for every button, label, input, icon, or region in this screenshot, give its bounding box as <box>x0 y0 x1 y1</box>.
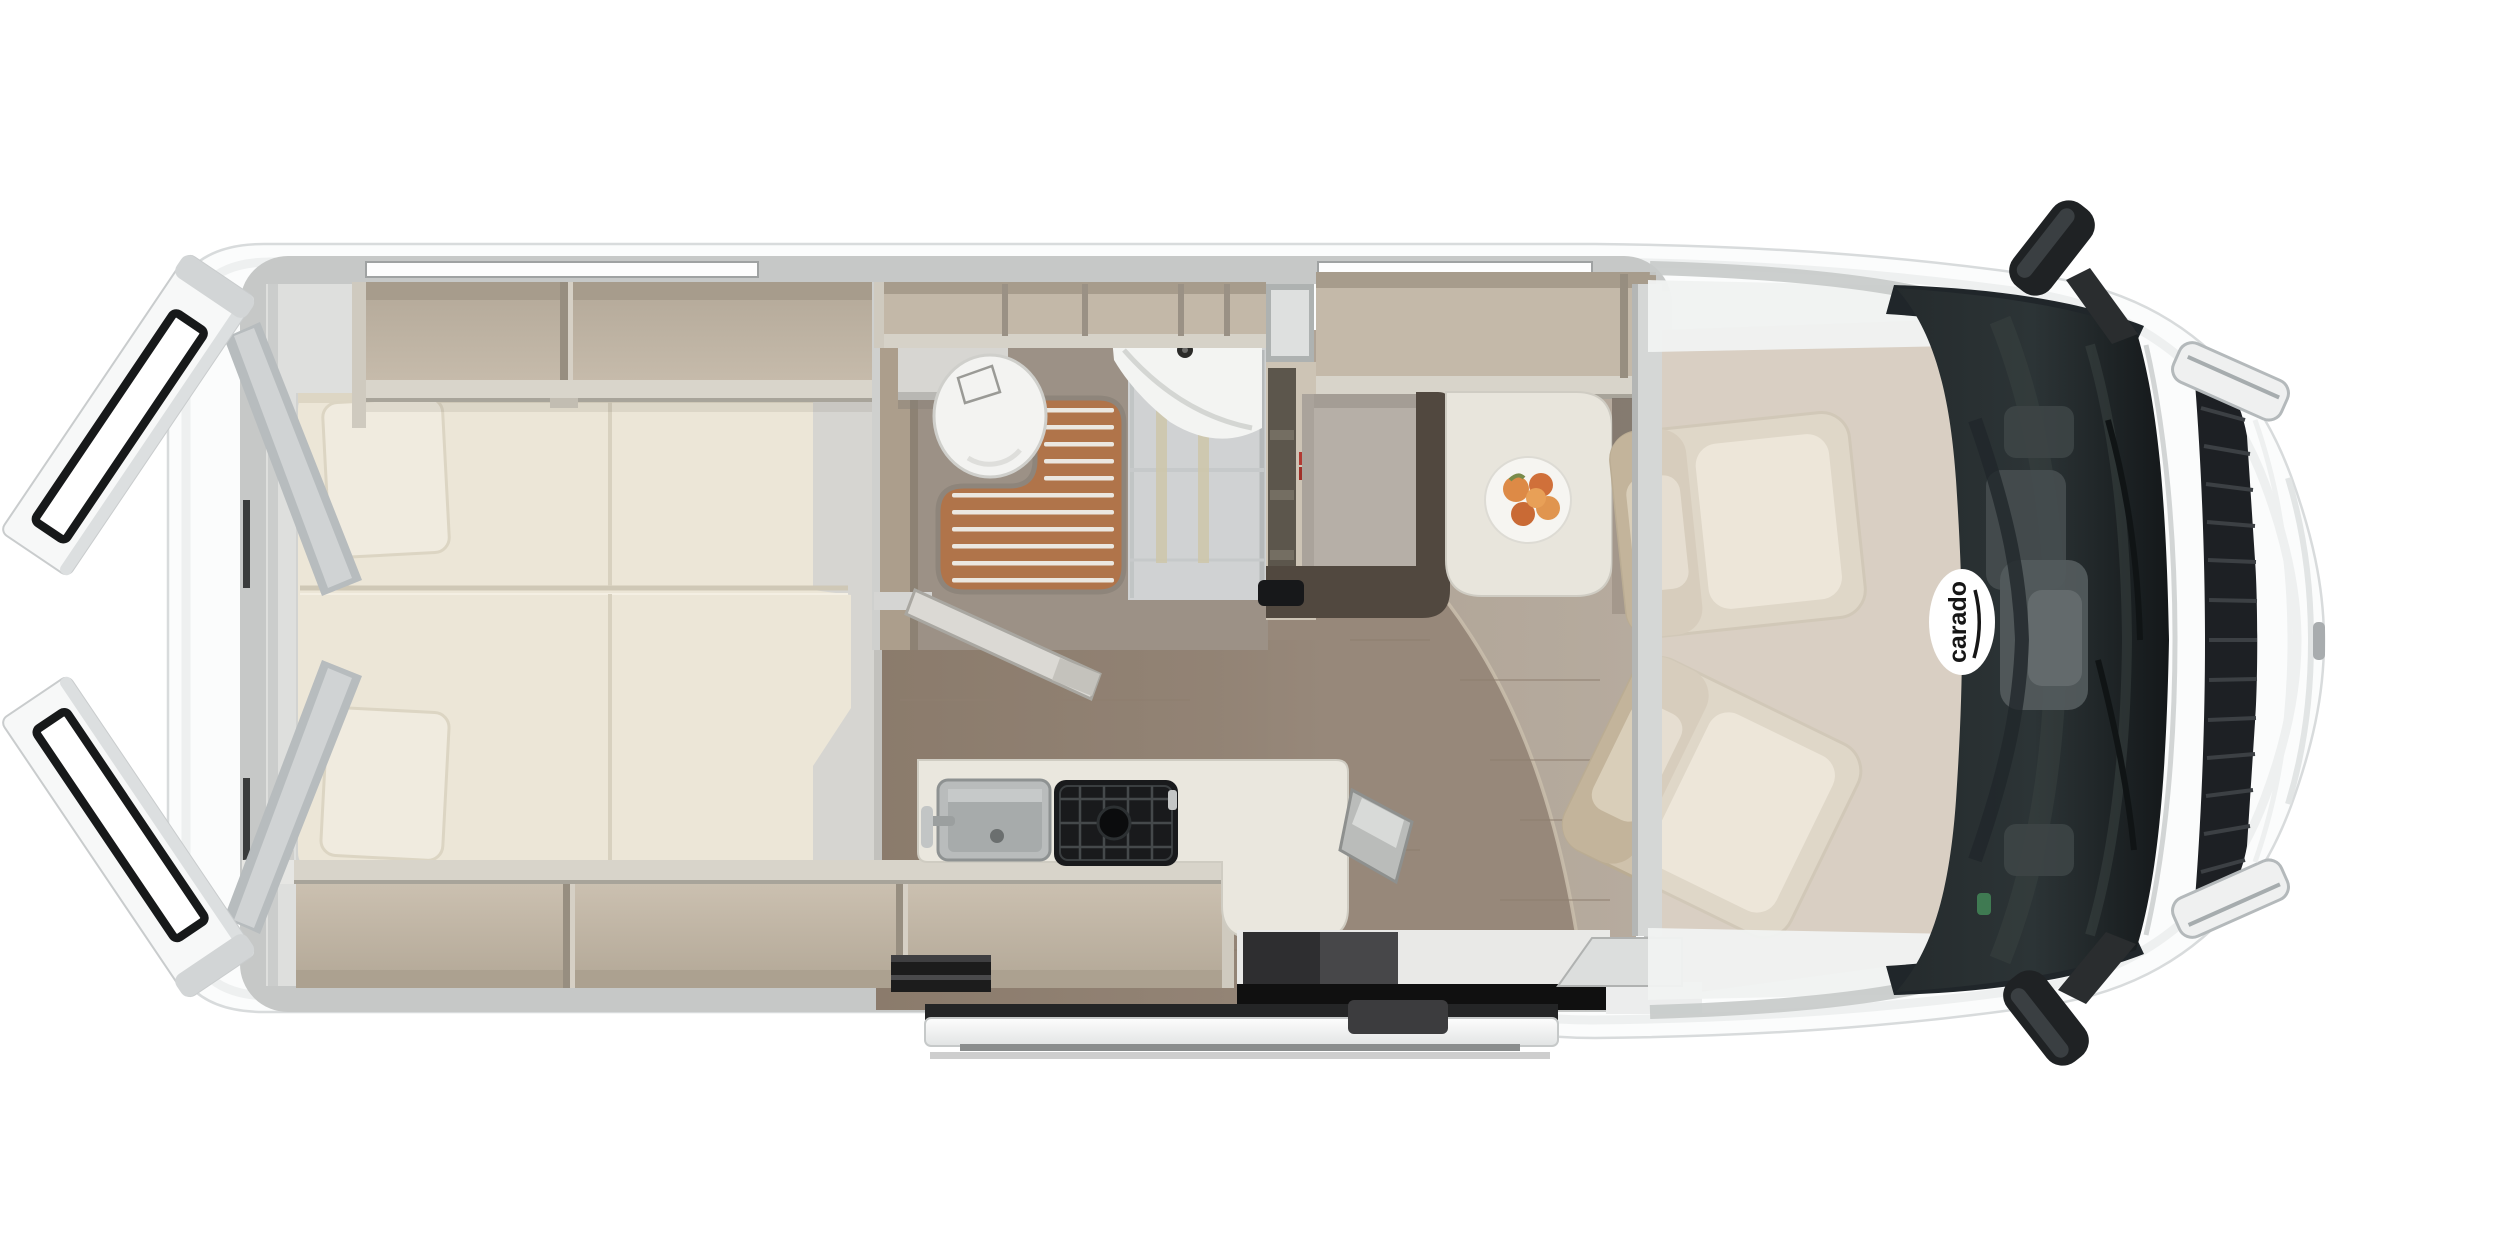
svg-text:carado: carado <box>1944 581 1972 663</box>
